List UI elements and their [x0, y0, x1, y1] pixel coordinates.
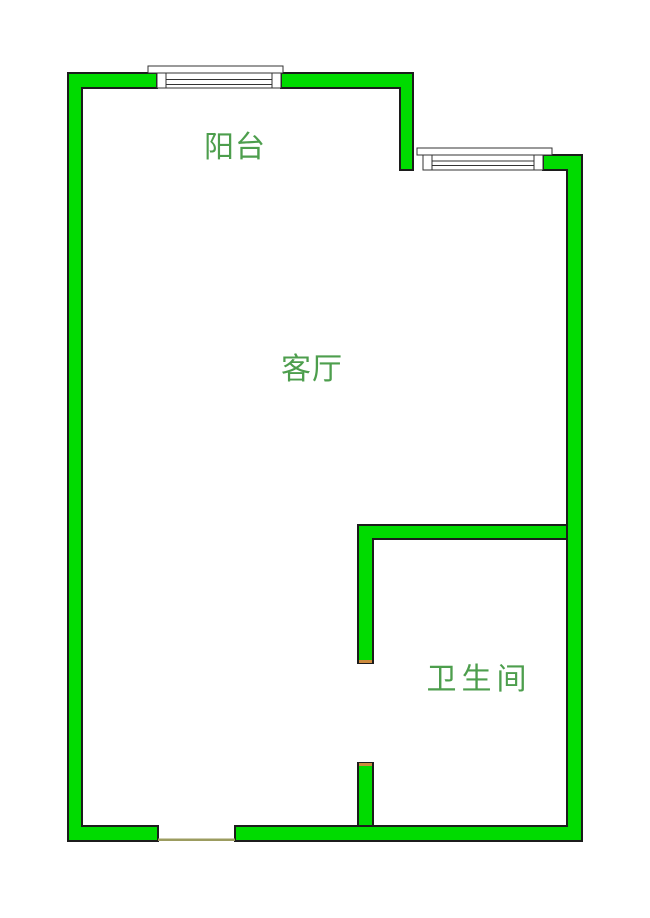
bathroom-wall — [358, 525, 567, 663]
bathroom-wall-stub — [358, 763, 373, 826]
bathroom-door-cap-upper — [359, 660, 372, 663]
window-right-frame — [423, 155, 543, 170]
outer-wall-top-step — [281, 73, 413, 170]
room-label-living-room: 客厅 — [281, 355, 343, 385]
window-top-cap-left — [157, 73, 166, 88]
window-right-icon — [417, 148, 552, 170]
window-top-frame — [157, 73, 281, 88]
window-right-sill — [417, 148, 552, 155]
window-right-cap-left — [423, 155, 432, 170]
outer-wall-right-bottom — [235, 155, 582, 841]
bathroom-door-cap-lower — [359, 763, 372, 766]
floor-plan: 阳台 客厅 卫生间 — [0, 0, 650, 918]
window-top-sill — [148, 66, 283, 73]
window-right-cap-right — [534, 155, 543, 170]
room-label-bathroom: 卫生间 — [427, 665, 532, 695]
room-label-balcony: 阳台 — [204, 133, 266, 163]
floor-plan-drawing — [0, 0, 650, 918]
outer-wall-left — [68, 73, 158, 841]
window-top-cap-right — [272, 73, 281, 88]
window-top-icon — [148, 66, 283, 88]
